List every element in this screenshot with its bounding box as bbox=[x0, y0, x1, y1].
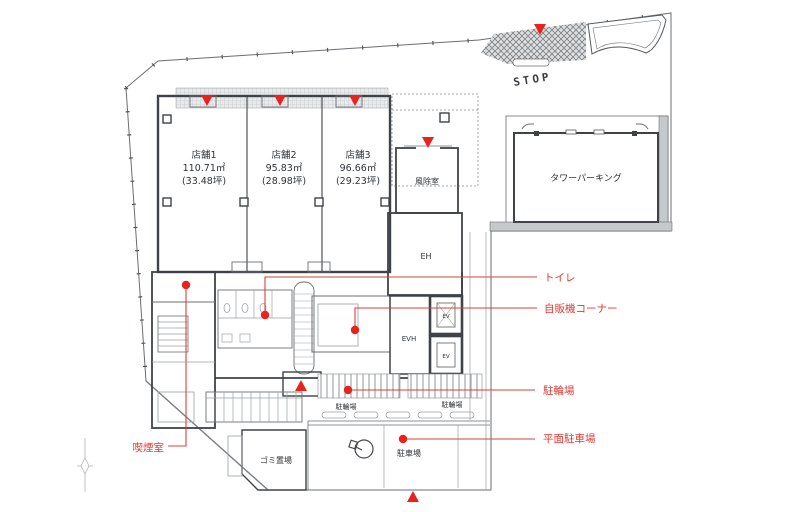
stairs-icon bbox=[158, 316, 188, 352]
toilet-annotation: トイレ bbox=[544, 272, 576, 284]
site-boundary bbox=[126, 13, 671, 490]
entrance-marker-icon bbox=[407, 491, 419, 502]
tower-parking-label: タワーパーキング bbox=[550, 172, 622, 184]
entrance-plaza bbox=[392, 94, 478, 186]
bicycle-parking-west: 駐輪場 bbox=[318, 374, 400, 411]
windbreak-room: 風除室 bbox=[396, 146, 458, 213]
floor-plan-canvas: STOP タワーパーキング 店舗1 bbox=[0, 0, 800, 512]
entrance-marker-icon bbox=[295, 380, 307, 391]
store-3-area: 96.66㎡ bbox=[340, 163, 377, 174]
store-3-label: 店舗3 96.66㎡ (29.23坪) bbox=[336, 149, 380, 187]
bicycle-parking-east-label: 駐輪場 bbox=[442, 400, 463, 409]
toilet-marker-dot bbox=[261, 311, 269, 319]
sidewalk-hatch bbox=[481, 22, 586, 66]
store-2-tsubo: (28.98坪) bbox=[262, 175, 306, 187]
garbage-label: ゴミ置場 bbox=[260, 455, 292, 465]
toilet-area bbox=[218, 290, 292, 348]
core-block: EVH EV EV bbox=[152, 272, 462, 428]
wheelchair-icon bbox=[349, 440, 373, 458]
store-3-tsubo: (29.23坪) bbox=[336, 175, 380, 187]
smoking-annotation: 喫煙室 bbox=[133, 441, 165, 454]
windbreak-label: 風除室 bbox=[415, 176, 439, 186]
survey-mark-icon bbox=[77, 438, 93, 492]
elevator-2-label: EV bbox=[442, 354, 449, 360]
corner-planter bbox=[588, 15, 666, 54]
vending-annotation: 自販機コーナー bbox=[544, 302, 618, 315]
store-1-area: 110.71㎡ bbox=[183, 163, 226, 174]
smoking-marker-dot bbox=[182, 281, 190, 289]
annotation-labels: トイレ 自販機コーナー 駐輪場 平面駐車場 喫煙室 bbox=[133, 272, 618, 454]
elevator-hall-label: EVH bbox=[402, 335, 416, 343]
surface-parking-marker-dot bbox=[399, 435, 407, 443]
elevator-1-label: EV bbox=[442, 314, 449, 320]
bicycle-parking-east: 駐輪場 bbox=[408, 374, 482, 409]
store-1-name: 店舗1 bbox=[191, 149, 216, 161]
entrance-hall-room: EH bbox=[388, 213, 462, 295]
stop-road-marking: STOP bbox=[512, 70, 552, 89]
vending-corner-area bbox=[312, 296, 390, 352]
store-2-area: 95.83㎡ bbox=[266, 163, 303, 174]
store-2-name: 店舗2 bbox=[271, 149, 296, 161]
vending-marker-dot bbox=[351, 326, 359, 334]
store-2-label: 店舗2 95.83㎡ (28.98坪) bbox=[262, 149, 306, 187]
bicycle-parking-west-label: 駐輪場 bbox=[336, 402, 357, 411]
parking-label: 駐車場 bbox=[397, 448, 421, 458]
store-3-name: 店舗3 bbox=[345, 149, 370, 161]
tower-parking-room: タワーパーキング bbox=[490, 116, 672, 231]
floor-plan-drawing: STOP タワーパーキング 店舗1 bbox=[0, 0, 800, 512]
bicycle-marker-dot bbox=[344, 386, 352, 394]
entrance-hall-label: EH bbox=[420, 252, 431, 261]
bicycle-rack-bars bbox=[322, 412, 474, 418]
store-1-tsubo: (33.48坪) bbox=[182, 175, 226, 187]
elevator-shaft-2: EV bbox=[430, 336, 462, 374]
garbage-room: ゴミ置場 bbox=[228, 430, 306, 490]
bicycle-annotation: 駐輪場 bbox=[543, 384, 575, 397]
elevator-shaft-1: EV bbox=[430, 296, 462, 334]
store-1-label: 店舗1 110.71㎡ (33.48坪) bbox=[182, 149, 226, 187]
main-stairs-icon bbox=[294, 282, 314, 374]
surface-parking-annotation: 平面駐車場 bbox=[543, 432, 596, 445]
